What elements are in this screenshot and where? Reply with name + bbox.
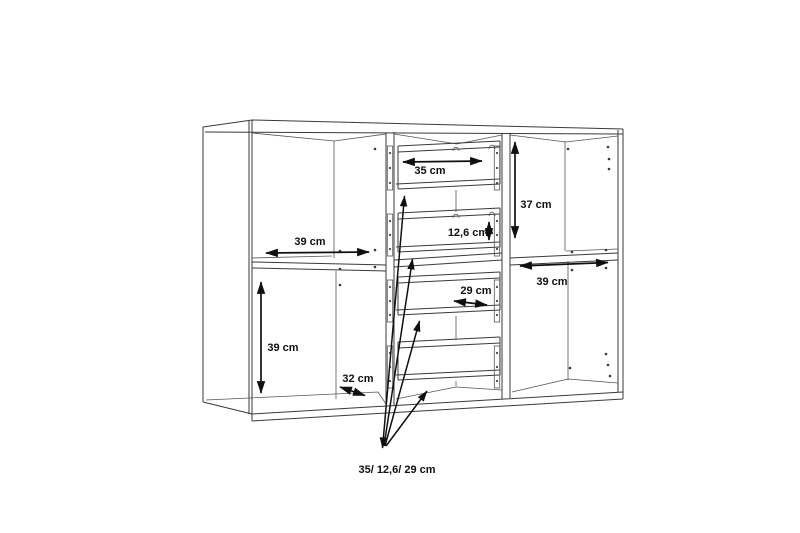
dim-left-bottom-height: 39 cm <box>261 282 299 393</box>
dim-label: 39 cm <box>267 342 298 354</box>
drawer-column <box>387 141 502 399</box>
dim-right-shelf-width: 39 cm <box>520 263 608 289</box>
dim-drawer-stack: 35/ 12,6/ 29 cm <box>358 196 435 476</box>
drawer-rails <box>387 146 499 388</box>
dim-right-top-height: 37 cm <box>515 142 552 238</box>
dim-label: 32 cm <box>342 373 373 385</box>
dim-label: 35 cm <box>414 165 445 177</box>
dim-lower-drawer-width: 29 cm <box>454 285 492 305</box>
dim-label: 35/ 12,6/ 29 cm <box>358 464 435 476</box>
dim-label: 37 cm <box>520 199 551 211</box>
technical-drawing: 39 cm 39 cm 32 cm 35 cm 12,6 cm 29 cm 37… <box>0 0 800 533</box>
dim-label: 39 cm <box>536 276 567 288</box>
dim-top-drawer-width: 35 cm <box>403 161 482 177</box>
dim-label: 29 cm <box>460 285 491 297</box>
top-panel-inner-edges <box>252 133 618 144</box>
cabinet-partitions <box>386 132 510 406</box>
dim-left-top-width: 39 cm <box>266 236 369 253</box>
dim-label: 12,6 cm <box>448 227 489 239</box>
dim-middle-drawer-height: 12,6 cm <box>448 222 489 240</box>
drawer-4 <box>396 337 500 380</box>
drawer-1 <box>396 141 500 189</box>
dim-label: 39 cm <box>294 236 325 248</box>
cabinet-outline <box>203 120 623 421</box>
left-section <box>206 141 386 404</box>
cabinet-diagram-svg: 39 cm 39 cm 32 cm 35 cm 12,6 cm 29 cm 37… <box>0 0 800 533</box>
